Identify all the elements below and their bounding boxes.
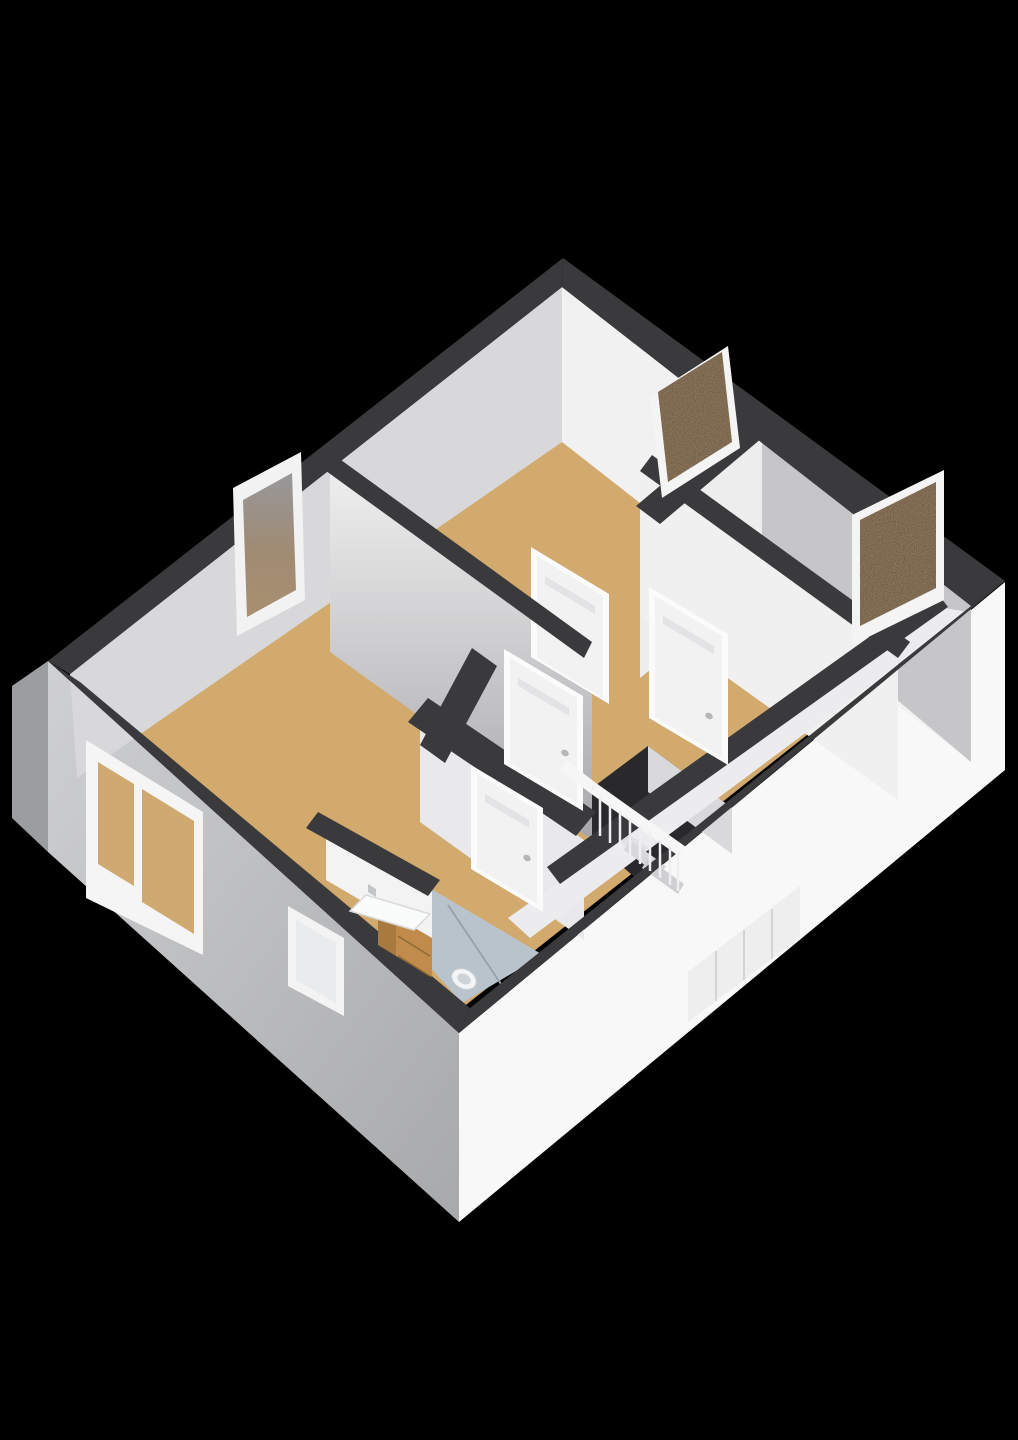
floorplan-3d-view — [0, 0, 1018, 1440]
floorplan-canvas — [0, 0, 1018, 1440]
facade-left-corner-sliver — [12, 661, 48, 852]
scene-root — [12, 258, 1005, 1222]
